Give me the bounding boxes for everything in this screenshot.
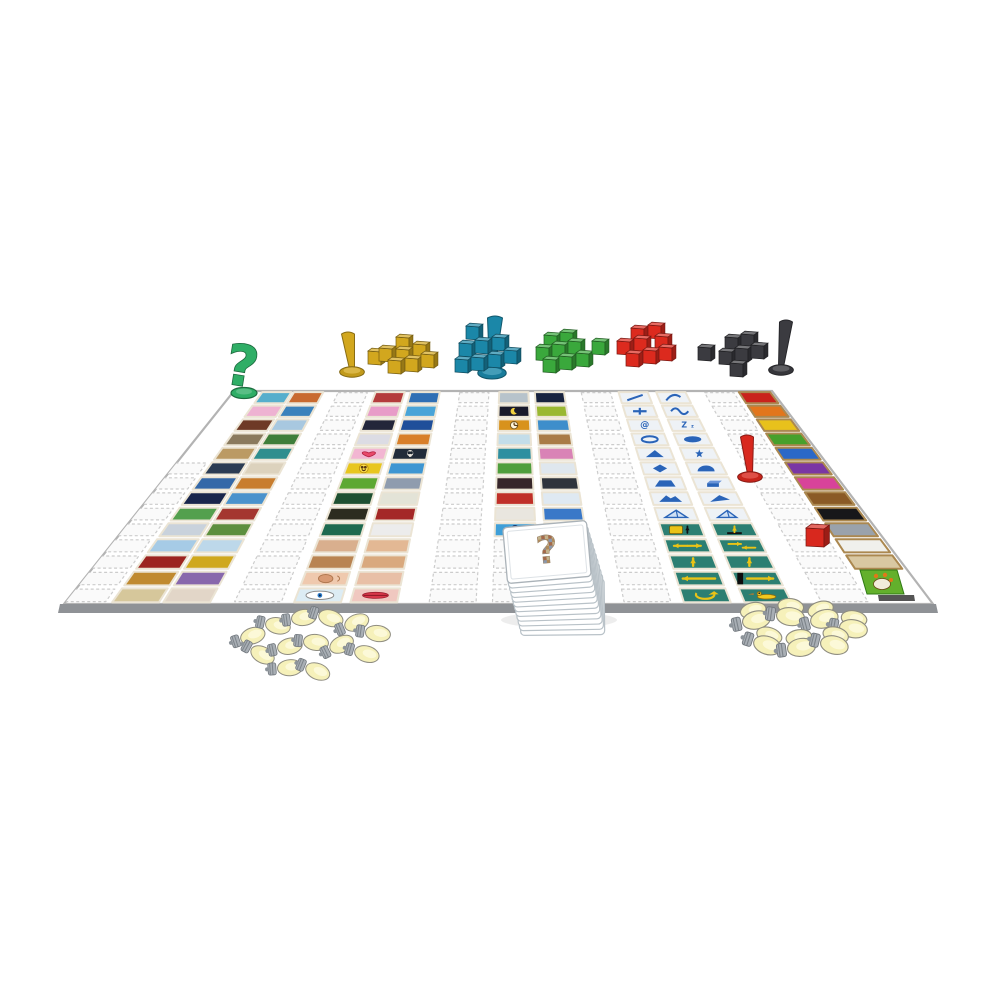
- empty-slot: [326, 406, 361, 416]
- icon-tile: [656, 392, 691, 403]
- cube: [421, 351, 438, 368]
- icon-tile: [805, 492, 855, 505]
- cube: [388, 357, 405, 374]
- icon-tile: [396, 434, 432, 446]
- icon-tile: [776, 448, 821, 460]
- icon-tile: [159, 523, 208, 536]
- yellow-exclamation-pawn: [340, 332, 365, 377]
- icon-tile: [204, 523, 252, 536]
- icon-tile: [387, 462, 426, 474]
- empty-slot: [91, 556, 139, 568]
- empty-slot: [78, 572, 127, 584]
- icon-tile: [194, 539, 244, 552]
- icon-tile: [243, 462, 286, 474]
- empty-slot: [605, 508, 647, 520]
- empty-slot: [593, 448, 630, 459]
- empty-slot: [596, 463, 634, 474]
- empty-slot: [243, 572, 293, 584]
- icon-tile: [148, 539, 199, 552]
- icon-tile: [400, 419, 435, 431]
- cube-group-green: [536, 329, 609, 373]
- board-front-edge: [58, 604, 938, 613]
- black-exclamation-pawn: [769, 320, 794, 375]
- icon-tile: [307, 555, 355, 568]
- icon-tile: [184, 555, 235, 568]
- empty-slot: [590, 434, 626, 445]
- icon-tile: [254, 392, 291, 403]
- icon-tile: [313, 539, 360, 552]
- empty-slot: [283, 493, 326, 504]
- icon-tile: [252, 448, 293, 460]
- icon-tile: [543, 508, 584, 521]
- empty-slot: [142, 493, 185, 504]
- cube: [471, 354, 488, 371]
- empty-slot: [720, 420, 758, 430]
- empty-slot: [814, 589, 868, 602]
- empty-slot: [587, 420, 622, 430]
- icon-tile: [496, 492, 535, 505]
- empty-slot: [736, 448, 777, 459]
- empty-slot: [608, 524, 652, 536]
- cube: [643, 347, 660, 364]
- icon-tile: [124, 572, 178, 586]
- icon-tile: [815, 508, 866, 521]
- empty-slot: [437, 540, 480, 552]
- icon-tile: [739, 392, 779, 403]
- red-cube-on-board: [806, 524, 829, 547]
- icon-tile: [326, 508, 370, 521]
- icon-tile: [535, 392, 566, 403]
- icon-tile: [825, 523, 878, 536]
- icon-tile: [355, 572, 403, 586]
- cube: [488, 351, 505, 368]
- icon-tile: [536, 406, 568, 417]
- icon-tile: [270, 419, 309, 431]
- empty-slot: [622, 589, 671, 602]
- icon-tile: [383, 477, 423, 489]
- cube: [735, 345, 752, 362]
- empty-slot: [290, 478, 332, 489]
- icon-tile: [224, 434, 265, 446]
- lightbulb-tokens-left: [227, 603, 392, 684]
- icon-tile: [338, 477, 379, 489]
- icon-tile: [542, 492, 582, 505]
- icon-tile: [320, 523, 365, 536]
- empty-slot: [275, 508, 320, 520]
- icon-tile: [748, 406, 789, 417]
- icon-tile: [371, 392, 405, 403]
- icon-tile: [408, 392, 440, 403]
- icon-tile: [537, 419, 570, 431]
- svg-text:Z: Z: [681, 420, 687, 429]
- empty-slot: [130, 508, 174, 520]
- empty-slot: [434, 556, 479, 568]
- cube: [475, 337, 492, 354]
- icon-tile: [112, 588, 168, 602]
- icon-tile: [836, 539, 891, 552]
- icon-tile: [631, 434, 668, 446]
- empty-slot: [446, 478, 484, 489]
- icon-tile: [287, 392, 323, 403]
- empty-slot: [602, 493, 643, 504]
- empty-slot: [805, 572, 857, 584]
- empty-slot: [584, 406, 617, 416]
- icon-tile: [538, 434, 573, 446]
- cube: [576, 350, 593, 367]
- icon-tile: [182, 492, 229, 505]
- empty-slot: [429, 589, 477, 602]
- empty-slot: [432, 572, 478, 584]
- empty-slot: [251, 556, 300, 568]
- cube-group-black: [698, 320, 793, 377]
- icon-tile: [214, 508, 261, 521]
- question-mark-pawn: ?: [221, 332, 263, 401]
- icon-tile: [498, 434, 532, 446]
- cube: [730, 360, 747, 377]
- icon-tile: [374, 508, 417, 521]
- cube: [504, 347, 521, 364]
- cube: [751, 342, 768, 359]
- empty-slot: [319, 420, 356, 430]
- icon-tile: [496, 477, 533, 489]
- icon-tile: [680, 588, 731, 602]
- empty-slot: [615, 556, 661, 568]
- icon-tile: [718, 539, 766, 552]
- concept-board-game-product-photo: 01@Zz??: [0, 0, 1000, 1000]
- icon-tile: [404, 406, 438, 417]
- empty-slot: [259, 540, 307, 552]
- cube: [543, 356, 560, 373]
- empty-slot: [581, 393, 613, 403]
- tile-column-center-left: 0: [495, 392, 536, 537]
- icon-tile: [785, 462, 832, 474]
- empty-slot: [769, 508, 815, 520]
- empty-slot: [599, 478, 639, 489]
- icon-tile: [795, 477, 843, 489]
- icon-tile: [233, 477, 277, 489]
- empty-slot: [235, 589, 287, 602]
- icon-tile: [495, 508, 535, 521]
- icon-tile: [360, 555, 407, 568]
- empty-slot: [298, 463, 339, 474]
- icon-tile: [846, 555, 902, 568]
- icon-tile: [541, 477, 579, 489]
- empty-slot: [305, 448, 344, 459]
- empty-slot: [267, 524, 313, 536]
- cube: [459, 340, 476, 357]
- icon-tile: [171, 508, 219, 521]
- cube: [698, 344, 715, 361]
- icon-tile: [136, 555, 188, 568]
- empty-slot: [611, 540, 656, 552]
- empty-slot: [618, 572, 666, 584]
- icon-tile: [214, 448, 256, 460]
- empty-slot: [441, 508, 482, 520]
- empty-slot: [761, 493, 806, 504]
- icon-tile: [499, 392, 529, 403]
- icon-tile: [757, 419, 799, 431]
- empty-slot: [439, 524, 481, 536]
- svg-text:z: z: [691, 424, 694, 429]
- icon-tile: [245, 406, 283, 417]
- empty-slot: [450, 448, 486, 459]
- icon-tile: [766, 434, 810, 446]
- icon-tile: [235, 419, 275, 431]
- cube: [806, 524, 829, 547]
- icon-tile: [203, 462, 247, 474]
- empty-slot: [796, 556, 847, 568]
- icon-tile: [163, 588, 217, 602]
- empty-slot: [456, 406, 488, 416]
- top-card: ?: [503, 520, 592, 583]
- empty-slot: [458, 393, 489, 403]
- icon-tile: [279, 406, 316, 417]
- cube: [659, 344, 676, 361]
- empty-slot: [444, 493, 483, 504]
- lightbulb-token: [292, 655, 333, 684]
- mosaic-question-mark: ?: [534, 527, 560, 573]
- cube: [592, 338, 609, 355]
- cube-group-red: [617, 322, 676, 367]
- cube: [626, 350, 643, 367]
- icon-tile: [355, 434, 392, 446]
- icon-tile: [365, 539, 410, 552]
- icon-tile: [332, 492, 374, 505]
- cube-group-yellow: [340, 332, 438, 377]
- icon-tile: [174, 572, 227, 586]
- icon-tile: [224, 492, 269, 505]
- empty-slot: [448, 463, 485, 474]
- svg-text:@: @: [640, 420, 649, 431]
- icon-tile: [540, 462, 577, 474]
- cube-group-teal: [455, 316, 521, 379]
- icon-tile: [261, 434, 301, 446]
- cube: [455, 356, 472, 373]
- empty-slot: [312, 434, 350, 445]
- board-game-scene: 01@Zz??: [0, 0, 1000, 1000]
- empty-slot: [452, 434, 486, 445]
- icon-tile: [193, 477, 238, 489]
- lightbulb-token: [352, 622, 391, 643]
- icon-tile: [497, 462, 533, 474]
- icon-tile: [378, 492, 419, 505]
- empty-slot: [712, 406, 749, 416]
- icon-tile: [361, 419, 397, 431]
- empty-slot: [454, 420, 487, 430]
- icon-tile: [366, 406, 401, 417]
- icon-tile: [539, 448, 575, 460]
- icon-tile: [369, 523, 413, 536]
- empty-slot: [333, 393, 367, 403]
- cube: [559, 353, 576, 370]
- cube: [405, 355, 422, 372]
- icon-tile: [497, 448, 532, 460]
